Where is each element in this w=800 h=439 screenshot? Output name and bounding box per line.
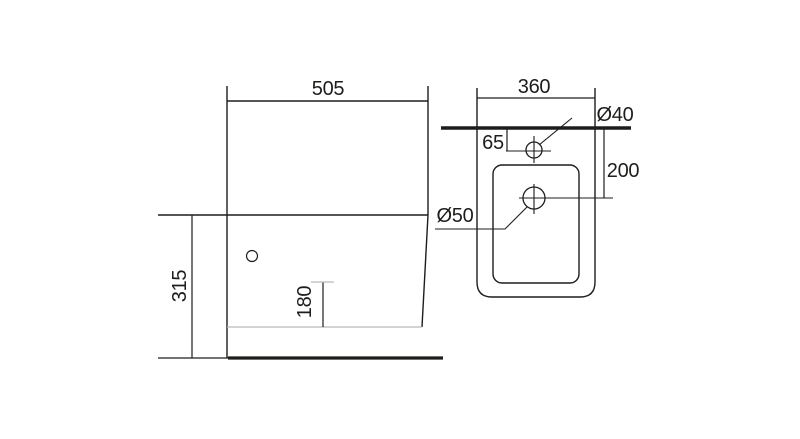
dim-label-drain-diameter: Ø50	[437, 205, 474, 227]
dim-label-drain-depth: 200	[607, 160, 640, 182]
dim-label-depth: 505	[312, 78, 345, 100]
top-view-outer-outline	[477, 88, 595, 297]
dim-label-faucet-offset: 65	[482, 132, 504, 154]
dim-label-height: 315	[169, 270, 191, 303]
leader-line-d40	[539, 118, 572, 145]
dim-label-faucet-diameter: Ø40	[597, 104, 634, 126]
dim-label-spout-height: 180	[294, 286, 316, 319]
drawing-svg: 505 315 180 360 Ø40 65 200 Ø50	[0, 0, 800, 439]
technical-drawing: 505 315 180 360 Ø40 65 200 Ø50	[0, 0, 800, 439]
basin-rim	[493, 165, 579, 283]
dimension-labels: 505 315 180 360 Ø40 65 200 Ø50	[169, 76, 639, 318]
side-view-slanted-edge	[422, 215, 428, 327]
mounting-hole	[247, 251, 258, 262]
dim-label-width: 360	[518, 76, 551, 98]
